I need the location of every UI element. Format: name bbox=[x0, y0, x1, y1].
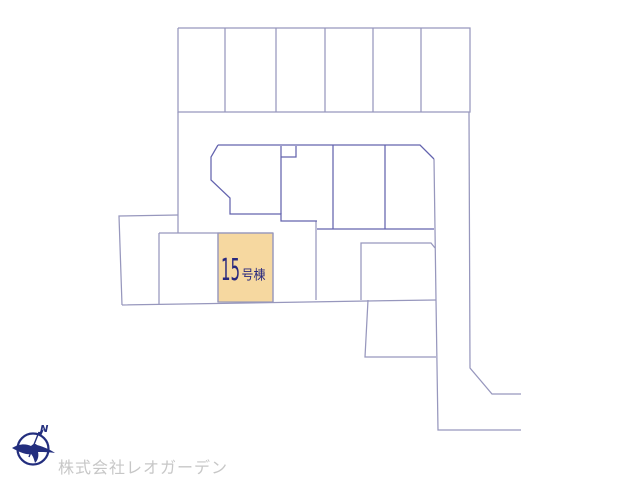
boundary-line bbox=[218, 145, 434, 159]
footer-brand: N 株式会社レオガーデン bbox=[12, 421, 312, 473]
compass-north-label: N bbox=[40, 424, 49, 435]
boundary-line bbox=[365, 300, 436, 357]
site-plan-map: 15 号棟 bbox=[0, 0, 640, 480]
plot-boundary-lines bbox=[119, 28, 521, 430]
site-plan-canvas: 15 号棟 N 株式会社レオガーデン bbox=[0, 0, 640, 480]
boundary-line bbox=[122, 300, 436, 305]
boundary-line bbox=[469, 112, 521, 394]
company-name: 株式会社レオガーデン bbox=[58, 454, 228, 478]
boundary-line bbox=[119, 215, 178, 305]
compass-logo-icon: N bbox=[12, 421, 64, 473]
boundary-line bbox=[361, 243, 435, 300]
boundary-line bbox=[434, 159, 521, 430]
boundary-line bbox=[211, 145, 317, 221]
boundary-line bbox=[281, 146, 296, 157]
plot-15-label-suffix: 号棟 bbox=[242, 268, 266, 284]
boundary-line bbox=[178, 28, 470, 112]
plot-15-label-number: 15 bbox=[221, 253, 240, 288]
